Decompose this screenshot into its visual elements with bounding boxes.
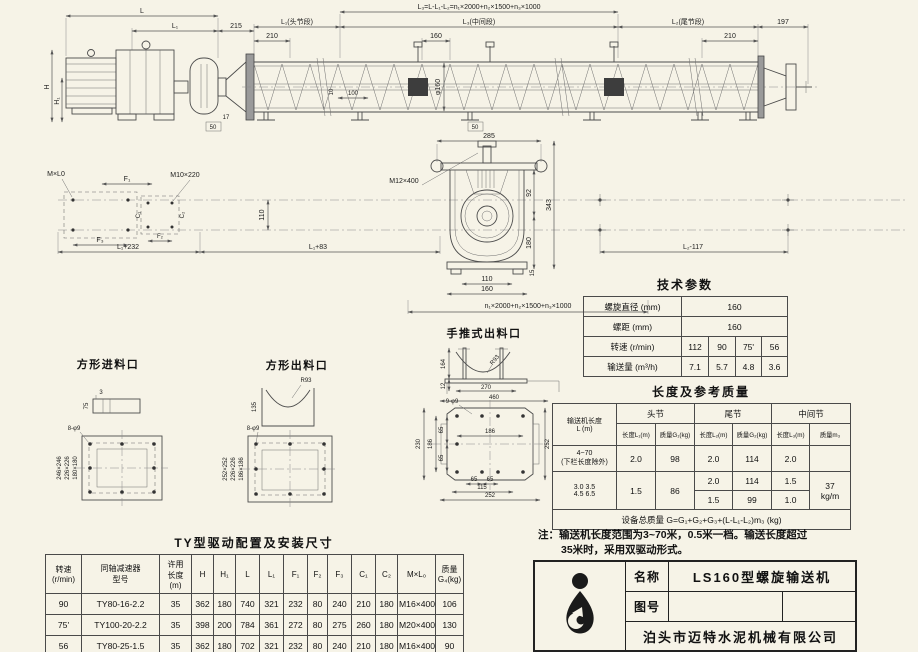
cell: 2.0 (772, 446, 810, 472)
group-mid: 中间节 (772, 404, 851, 424)
tech-cell: 56 (762, 337, 788, 357)
dim-92: 92 (526, 189, 533, 197)
company-logo (535, 562, 626, 650)
hand-outlet-title: 手推式出料口 (447, 326, 522, 340)
ty-cell: 180 (214, 636, 236, 652)
dim-R93: R93 (300, 378, 312, 384)
note: 注：输送机长度范围为3~70米，0.5米一档。输送长度超过 35米时，采用双驱动… (538, 528, 913, 557)
ty-cell: 90 (46, 594, 82, 615)
dim-186-horizontal: 186 (485, 429, 496, 435)
ty-cell: 740 (236, 594, 260, 615)
product-name: LS160型螺旋输送机 (669, 562, 855, 591)
dim-285: 285 (483, 133, 495, 140)
ty-header: 质量 G₄(kg) (436, 555, 464, 594)
length-mass-title: 长度及参考质量 (552, 383, 850, 400)
ty-cell: 90 (436, 636, 464, 652)
label-8-holes-inlet: 8-φ9 (68, 426, 81, 432)
cell: 1.5 (695, 491, 733, 510)
ty-cell: 180 (376, 594, 398, 615)
dim-tail-section: L₂(尾节段) (672, 17, 704, 26)
dim-460: 460 (489, 395, 500, 401)
dim-50-left: 50 (210, 125, 217, 131)
tech-params-title: 技术参数 (583, 276, 787, 293)
dim-3: 3 (99, 390, 103, 396)
ty-header: F₂ (308, 555, 328, 594)
dim-L: L (140, 8, 144, 15)
ty-cell: 210 (352, 636, 376, 652)
dim-H1: H₁ (54, 97, 61, 105)
ty-cell: M16×400 (398, 636, 436, 652)
cell: 2.0 (695, 446, 733, 472)
label-M12x400: M12×400 (389, 178, 418, 185)
subheader: 质量G₁(kg) (656, 424, 695, 446)
ty-cell: 80 (308, 636, 328, 652)
ty-cell: 321 (260, 636, 284, 652)
dim-L2-117: L₂-117 (683, 244, 703, 251)
dim-L1: L₁ (172, 23, 179, 30)
dim-197: 197 (777, 19, 789, 26)
ty-cell: 35 (160, 615, 192, 636)
ty-header: L₁ (260, 555, 284, 594)
tech-params-panel: 技术参数 螺旋直径 (mm) 160 螺距 (mm) 160 转速 (r/min… (583, 276, 787, 377)
cell: 1.5 (617, 472, 656, 510)
ty-cell: 362 (192, 594, 214, 615)
tech-params-table: 螺旋直径 (mm) 160 螺距 (mm) 160 转速 (r/min) 112… (583, 296, 788, 377)
label-MxL0: M×L0 (47, 171, 65, 178)
ty-cell: 210 (352, 594, 376, 615)
ty-cell: 362 (192, 636, 214, 652)
dim-17: 17 (223, 115, 230, 121)
ty-cell: 232 (284, 636, 308, 652)
ty-cell: 702 (236, 636, 260, 652)
cell: 98 (656, 446, 695, 472)
dim-160-pitch: 160 (430, 33, 442, 40)
tech-cell: 5.7 (709, 357, 736, 377)
dim-modules: n₁×2000+n₂×1500+n₃×1000 (485, 303, 572, 310)
title-block: 名称 LS160型螺旋输送机 图号 泊头市迈特水泥机械有限公司 (533, 560, 857, 652)
square-inlet-title: 方形进料口 (77, 357, 140, 371)
total-mass-formula: 设备总质量 G=G₁+G₂+G₃+(L-L₁-L₂)m₃ (kg) (553, 510, 851, 530)
length-mass-table: 输送机长度 L (m) 头节 尾节 中间节 长度L₁(m) 质量G₁(kg) 长… (552, 403, 851, 530)
ty-drive-table: 转速 (r/min) 同轴减速器 型号 许用 长度 (m) H H₁ L L₁ … (45, 554, 464, 652)
tech-cell: 75' (736, 337, 762, 357)
dim-H: H (44, 84, 51, 89)
tech-cell: 4.8 (736, 357, 762, 377)
dim-230: 230 (416, 438, 422, 449)
ty-cell: 75' (46, 615, 82, 636)
dim-226x226-in: 226×226 (65, 456, 71, 480)
ty-cell: 56 (46, 636, 82, 652)
dim-160-sec: 160 (481, 286, 493, 293)
length-range-cell: 4~70 (下栏长度除外) (553, 446, 617, 472)
dim-75: 75 (84, 402, 90, 409)
square-outlet-detail: 方形出料口 R93 135 252×252 226×226 186×186 8-… (223, 358, 337, 508)
ty-cell: TY100-20-2.2 (82, 615, 160, 636)
ty-cell: 80 (308, 594, 328, 615)
tech-cell: 90 (709, 337, 736, 357)
dim-head-section: L₁(头节段) (281, 17, 313, 26)
ty-cell: 80 (308, 615, 328, 636)
dim-50-right: 50 (472, 125, 479, 131)
tech-row-value: 160 (682, 297, 788, 317)
dim-C2: C₂ (180, 211, 186, 218)
ty-cell: 361 (260, 615, 284, 636)
length-range-cell: 3.0 3.5 4.5 6.5 (553, 472, 617, 510)
tech-cell: 3.6 (762, 357, 788, 377)
dim-164: 164 (441, 358, 447, 369)
ty-header: 许用 长度 (m) (160, 555, 192, 594)
ty-cell: TY80-16-2.2 (82, 594, 160, 615)
label-8-holes-outlet: 8-φ9 (247, 426, 260, 432)
tech-cell: 7.1 (682, 357, 709, 377)
square-outlet-title: 方形出料口 (266, 358, 329, 372)
cell-empty (810, 446, 851, 472)
dim-65-c: 65 (471, 477, 478, 483)
ty-cell: 180 (214, 594, 236, 615)
ty-header: C₂ (376, 555, 398, 594)
assembly-side-view: L L₁ 215 L₃=L-L₁-L₂=n₁×2000+n₂×1500+n₃×1… (44, 4, 818, 131)
logo-icon (552, 569, 608, 643)
dim-215: 215 (230, 23, 242, 30)
ty-header: F₃ (328, 555, 352, 594)
ty-header: F₁ (284, 555, 308, 594)
dim-252-bottom: 252 (485, 493, 496, 499)
ty-cell: 260 (352, 615, 376, 636)
conveyor-trough (242, 42, 818, 120)
ty-cell: 784 (236, 615, 260, 636)
ty-cell: 180 (376, 636, 398, 652)
cell: 2.0 (695, 472, 733, 491)
dim-F3: F₃ (96, 237, 103, 244)
dim-10: 10 (329, 88, 335, 95)
drawing-no-label: 图号 (626, 592, 669, 621)
ty-cell: 272 (284, 615, 308, 636)
group-head: 头节 (617, 404, 695, 424)
ty-header: M×L₀ (398, 555, 436, 594)
group-tail: 尾节 (695, 404, 772, 424)
tech-row-label: 输送量 (m³/h) (584, 357, 682, 377)
ty-header: H₁ (214, 555, 236, 594)
ty-cell: TY80-25-1.5 (82, 636, 160, 652)
outlet-flange-detail: 9-φ9 230 186 65 65 252 186 65 65 115 252 (416, 399, 551, 500)
ty-cell: 180 (376, 615, 398, 636)
dim-115: 115 (477, 485, 487, 491)
ty-header: C₁ (352, 555, 376, 594)
dim-210-right: 210 (724, 33, 736, 40)
label-9-holes: 9-φ9 (446, 399, 459, 405)
name-label: 名称 (626, 562, 669, 591)
dim-186x186: 186×186 (239, 457, 245, 481)
end-bearing (758, 56, 812, 118)
dim-65-d: 65 (487, 477, 494, 483)
note-line-2: 35米时，采用双驱动形式。 (538, 543, 913, 558)
dim-135: 135 (252, 401, 258, 412)
dim-12: 12 (441, 382, 447, 389)
dim-252x252: 252×252 (223, 457, 229, 481)
dim-252-right: 252 (545, 438, 551, 449)
dim-180: 180 (526, 237, 533, 249)
ty-cell: 398 (192, 615, 214, 636)
dim-110-plan: 110 (259, 209, 266, 220)
ty-cell: 130 (436, 615, 464, 636)
dim-formula: L₃=L-L₁-L₂=n₁×2000+n₂×1500+n₃×1000 (417, 4, 540, 11)
dim-15: 15 (530, 269, 536, 276)
square-inlet-detail: 方形进料口 3 75 246×246 226×226 180×180 8-φ9 (57, 357, 168, 506)
cell: 2.0 (617, 446, 656, 472)
tech-row-value: 160 (682, 317, 788, 337)
ty-cell: 275 (328, 615, 352, 636)
dim-226x226-out: 226×226 (231, 457, 237, 481)
dim-F2: F₂ (157, 234, 164, 240)
drive-gearbox (116, 41, 174, 120)
mounting-plan-view: F₁ F₃ F₂ C₁ C₂ M×L0 M10×220 110 L₁+232 L… (47, 153, 905, 254)
ty-cell: M20×400 (398, 615, 436, 636)
dim-C1: C₁ (136, 212, 142, 218)
subheader: 质量G₂(kg) (733, 424, 772, 446)
drawing-sheet: L L₁ 215 L₃=L-L₁-L₂=n₁×2000+n₂×1500+n₃×1… (0, 0, 918, 652)
cell: 1.0 (772, 491, 810, 510)
tech-row-label: 螺旋直径 (mm) (584, 297, 682, 317)
col-header-length: 输送机长度 L (m) (553, 404, 617, 446)
ty-cell: M16×400 (398, 594, 436, 615)
ty-cell: 321 (260, 594, 284, 615)
dim-mid-section: L₃(中间段) (463, 17, 495, 26)
ty-drive-panel: TY型驱动配置及安装尺寸 转速 (r/min) 同轴减速器 型号 许用 长度 (… (45, 534, 463, 652)
cell: 114 (733, 472, 772, 491)
ty-cell: 240 (328, 636, 352, 652)
cell: 114 (733, 446, 772, 472)
dim-186-left: 186 (428, 438, 434, 449)
ty-header: H (192, 555, 214, 594)
ty-drive-title: TY型驱动配置及安装尺寸 (45, 534, 463, 551)
dim-65-b: 65 (439, 454, 445, 461)
cell: 1.5 (772, 472, 810, 491)
dim-270: 270 (481, 385, 492, 391)
note-line-1: 注：输送机长度范围为3~70米，0.5米一档。输送长度超过 (538, 528, 913, 543)
subheader: 质量m₃ (810, 424, 851, 446)
ty-header: L (236, 555, 260, 594)
ty-cell: 35 (160, 636, 192, 652)
ty-cell: 240 (328, 594, 352, 615)
cell: 99 (733, 491, 772, 510)
dim-246x246: 246×246 (57, 456, 63, 480)
hand-push-outlet-detail: 手推式出料口 R93 164 12 270 460 (440, 326, 559, 401)
tech-cell: 112 (682, 337, 709, 357)
dim-110-sec: 110 (481, 276, 492, 283)
dim-343: 343 (546, 199, 553, 211)
dim-L1-232: L₁+232 (117, 244, 139, 251)
subheader: 长度L₂(m) (695, 424, 733, 446)
subheader: 长度L₃(m) (772, 424, 810, 446)
tech-row-label: 转速 (r/min) (584, 337, 682, 357)
dim-L1-83: L₁+83 (309, 244, 327, 251)
ty-cell: 232 (284, 594, 308, 615)
ty-header: 同轴减速器 型号 (82, 555, 160, 594)
dim-F1: F₁ (124, 176, 131, 183)
cell-mass-per-meter: 37 kg/m (810, 472, 851, 510)
ty-cell: 200 (214, 615, 236, 636)
dim-210-left: 210 (266, 33, 278, 40)
dim-180x180: 180×180 (73, 456, 79, 480)
ty-cell: 106 (436, 594, 464, 615)
ty-cell: 35 (160, 594, 192, 615)
cell: 86 (656, 472, 695, 510)
subheader: 长度L₁(m) (617, 424, 656, 446)
ty-header: 转速 (r/min) (46, 555, 82, 594)
label-M10x220: M10×220 (170, 172, 199, 179)
dim-65-a: 65 (439, 426, 445, 433)
drawing-no-value (669, 592, 782, 621)
tech-row-label: 螺距 (mm) (584, 317, 682, 337)
company-name: 泊头市迈特水泥机械有限公司 (626, 622, 855, 650)
length-mass-panel: 长度及参考质量 输送机长度 L (m) 头节 尾节 中间节 长度L₁(m) 质量… (552, 383, 850, 530)
drawing-no-extra-cell (782, 592, 855, 621)
drive-motor (66, 50, 116, 115)
